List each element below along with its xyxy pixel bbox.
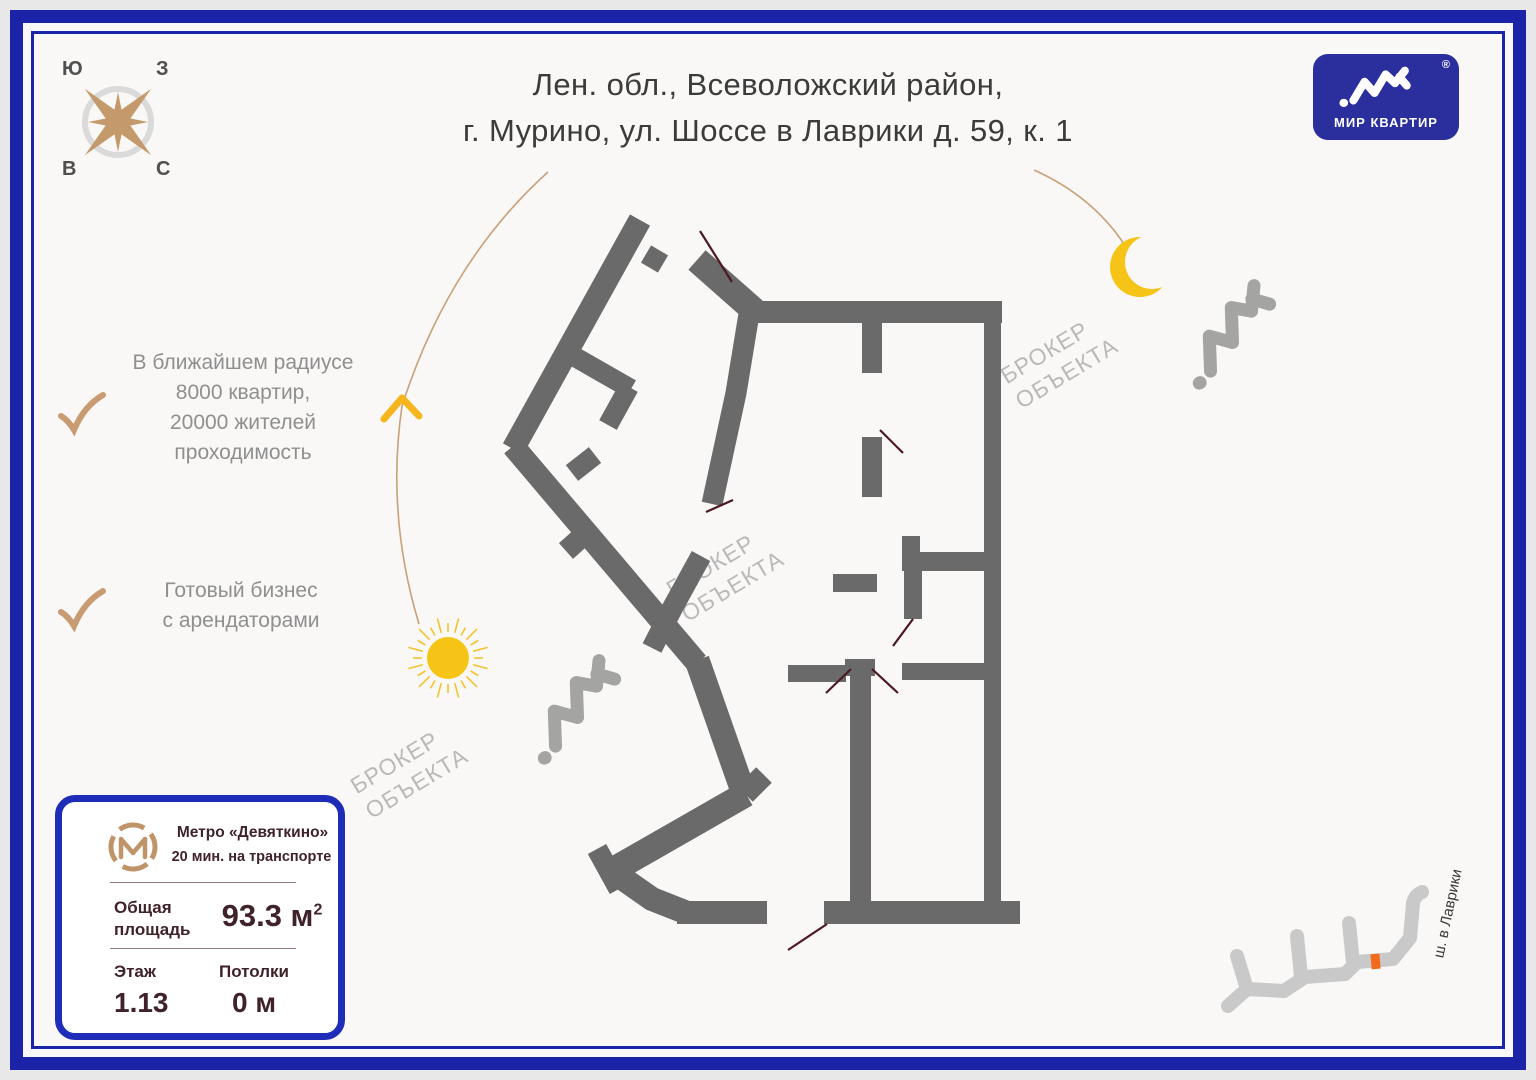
street-map [1228,892,1422,1006]
annotation-arcs [397,170,1124,624]
watermark-logo-icon [1171,284,1285,383]
card-divider [110,948,296,949]
floor-label: Этаж [114,962,156,982]
page-title: Лен. обл., Всеволожский район, г. Мурино… [0,62,1536,154]
compass-label-east: В [62,158,76,181]
feature-nearby-radius: В ближайшем радиусе 8000 квартир, 20000 … [112,348,374,468]
floor-plan [513,220,1020,924]
registered-mark: ® [1442,59,1450,71]
brand-name: МИР КВАРТИР [1313,115,1459,130]
brand-logo-icon [1313,60,1459,112]
floor-value: 1.13 [114,987,169,1019]
ceiling-value: 0 м [232,987,276,1019]
total-area-label: Общая площадь [114,897,190,941]
checkmark-icon [56,588,108,634]
ceiling-label: Потолки [219,962,289,982]
info-card: Метро «Девяткино» 20 мин. на транспорте … [55,795,345,1040]
metro-station: Метро «Девяткино» [170,824,335,842]
moon-icon [1110,237,1170,297]
metro-icon [106,820,160,874]
checkmark-icon [56,392,108,438]
watermark-logo-icon [516,659,630,758]
sun-icon [408,618,487,697]
address-line-2: г. Мурино, ул. Шоссе в Лаврики д. 59, к.… [0,108,1536,154]
total-area-value: 93.3 м2 [212,898,332,934]
metro-travel-time: 20 мин. на транспорте [164,849,339,865]
brand-logo: ® МИР КВАРТИР [1313,54,1459,140]
card-divider [110,882,296,883]
compass-label-north: С [156,158,170,181]
location-marker [1370,954,1380,970]
address-line-1: Лен. обл., Всеволожский район, [0,62,1536,108]
feature-ready-business: Готовый бизнес с арендаторами [110,576,372,636]
